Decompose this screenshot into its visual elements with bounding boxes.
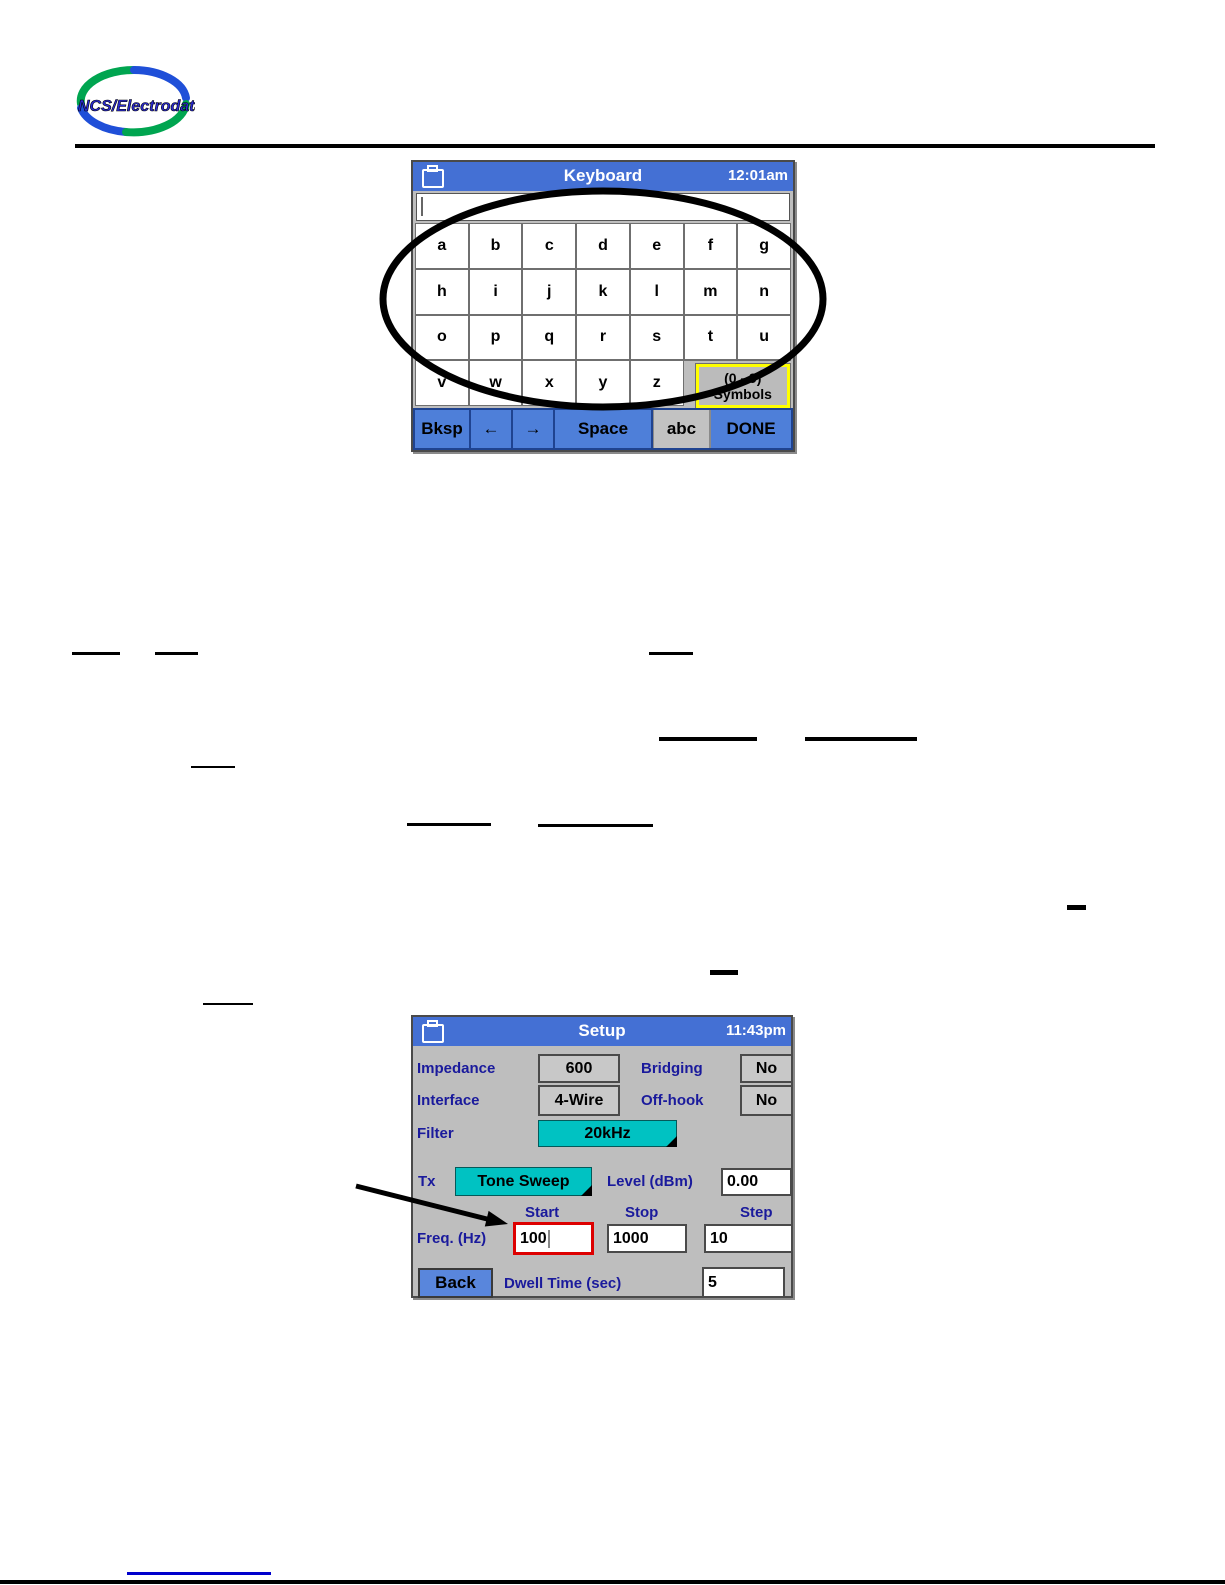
keyboard-titlebar: Keyboard 12:01am — [413, 162, 793, 191]
underline-mark — [72, 652, 120, 655]
key-e[interactable]: e — [630, 223, 684, 269]
keyboard-screenshot: Keyboard 12:01am abcdefghijklmnopqrstuvw… — [411, 160, 795, 452]
dwell-label: Dwell Time (sec) — [504, 1268, 621, 1298]
text-cursor — [548, 1230, 550, 1248]
freq-label: Freq. (Hz) — [417, 1223, 486, 1254]
keyboard-button-arrow-left[interactable]: ← — [471, 410, 513, 448]
offhook-value[interactable]: No — [740, 1085, 793, 1116]
key-c[interactable]: c — [522, 223, 576, 269]
keyboard-button-space[interactable]: Space — [555, 410, 653, 448]
underline-mark — [710, 970, 738, 975]
interface-value[interactable]: 4-Wire — [538, 1085, 620, 1116]
key-l[interactable]: l — [630, 269, 684, 315]
stop-column-label: Stop — [625, 1203, 658, 1221]
underline-mark — [1067, 905, 1086, 910]
underline-mark — [407, 823, 491, 826]
key-h[interactable]: h — [415, 269, 469, 315]
header-rule — [75, 144, 1155, 148]
key-r[interactable]: r — [576, 315, 630, 361]
key-j[interactable]: j — [522, 269, 576, 315]
key-v[interactable]: v — [415, 360, 469, 406]
freq-step-input[interactable]: 10 — [704, 1224, 793, 1253]
filter-dropdown[interactable]: 20kHz — [538, 1120, 677, 1147]
underline-mark — [659, 737, 757, 741]
underline-mark — [191, 766, 235, 768]
keyboard-button-abc[interactable]: abc — [653, 410, 711, 448]
offhook-label: Off-hook — [641, 1085, 703, 1116]
text-entry-field[interactable] — [416, 193, 790, 221]
key-m[interactable]: m — [684, 269, 738, 315]
keyboard-bottom-bar: Bksp←→SpaceabcDONE — [413, 408, 793, 450]
freq-stop-input[interactable]: 1000 — [607, 1224, 687, 1253]
interface-label: Interface — [417, 1085, 480, 1116]
underline-mark — [538, 824, 653, 827]
tx-dropdown[interactable]: Tone Sweep — [455, 1167, 592, 1196]
key-g[interactable]: g — [737, 223, 791, 269]
symbols-key-area: (0 - 9)Symbols — [684, 360, 791, 406]
key-u[interactable]: u — [737, 315, 791, 361]
footer-rule — [0, 1580, 1225, 1584]
ncs-electrodata-logo: NCS/Electrodata — [70, 58, 195, 142]
freq-start-value: 100 — [520, 1230, 547, 1248]
key-n[interactable]: n — [737, 269, 791, 315]
logo-text: NCS/Electrodata — [78, 98, 195, 115]
keyboard-button-arrow-right[interactable]: → — [513, 410, 555, 448]
key-p[interactable]: p — [469, 315, 523, 361]
freq-start-input[interactable]: 100 — [513, 1222, 594, 1255]
key-x[interactable]: x — [522, 360, 576, 406]
underline-mark — [805, 737, 917, 741]
key-o[interactable]: o — [415, 315, 469, 361]
underline-mark — [155, 652, 198, 655]
clock-time: 12:01am — [728, 167, 788, 184]
keyboard-button-bksp[interactable]: Bksp — [415, 410, 471, 448]
bridging-value[interactable]: No — [740, 1054, 793, 1083]
key-s[interactable]: s — [630, 315, 684, 361]
underline-mark — [649, 652, 693, 655]
key-y[interactable]: y — [576, 360, 630, 406]
key-w[interactable]: w — [469, 360, 523, 406]
bridging-label: Bridging — [641, 1054, 703, 1083]
start-column-label: Start — [525, 1203, 559, 1221]
footer-link-underline — [127, 1572, 271, 1575]
key-z[interactable]: z — [630, 360, 684, 406]
step-column-label: Step — [740, 1203, 773, 1221]
key-k[interactable]: k — [576, 269, 630, 315]
symbols-key[interactable]: (0 - 9)Symbols — [696, 364, 790, 408]
manual-page: NCS/Electrodata Keyboard 12:01am abcdefg… — [0, 0, 1225, 1585]
key-i[interactable]: i — [469, 269, 523, 315]
level-label: Level (dBm) — [607, 1167, 693, 1196]
key-d[interactable]: d — [576, 223, 630, 269]
dwell-input[interactable]: 5 — [702, 1267, 785, 1298]
text-cursor — [421, 197, 423, 216]
keyboard-button-done[interactable]: DONE — [711, 410, 791, 448]
keyboard-keys: abcdefghijklmnopqrstuvwxyz(0 - 9)Symbols — [415, 223, 791, 406]
key-b[interactable]: b — [469, 223, 523, 269]
back-button[interactable]: Back — [418, 1268, 493, 1298]
clock-time: 11:43pm — [726, 1022, 786, 1039]
impedance-label: Impedance — [417, 1054, 495, 1083]
setup-titlebar: Setup 11:43pm — [413, 1017, 791, 1046]
key-a[interactable]: a — [415, 223, 469, 269]
filter-label: Filter — [417, 1120, 454, 1147]
underline-mark — [203, 1003, 253, 1005]
key-t[interactable]: t — [684, 315, 738, 361]
level-input[interactable]: 0.00 — [721, 1168, 792, 1196]
impedance-value[interactable]: 600 — [538, 1054, 620, 1083]
tx-label: Tx — [418, 1167, 436, 1196]
setup-screenshot: Setup 11:43pm Impedance 600 Bridging No … — [411, 1015, 793, 1298]
key-f[interactable]: f — [684, 223, 738, 269]
key-q[interactable]: q — [522, 315, 576, 361]
